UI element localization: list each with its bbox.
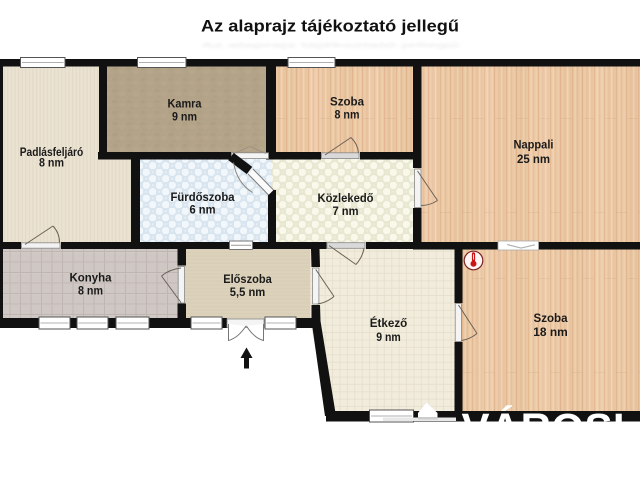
svg-text:Szoba: Szoba [534, 311, 568, 325]
svg-text:8 nm: 8 nm [335, 108, 360, 122]
svg-text:Étkező: Étkező [370, 315, 408, 330]
svg-text:Kamra: Kamra [168, 97, 202, 111]
svg-text:Nappali: Nappali [514, 138, 554, 152]
svg-text:7 nm: 7 nm [333, 204, 359, 218]
svg-text:Az alaprajz tájékoztató jelleg: Az alaprajz tájékoztató jellegű [201, 17, 459, 36]
svg-text:18 nm: 18 nm [533, 325, 568, 339]
svg-text:5,5 nm: 5,5 nm [230, 285, 266, 299]
svg-text:6 nm: 6 nm [190, 203, 216, 217]
svg-text:Konyha: Konyha [70, 271, 112, 285]
svg-text:Közlekedő: Közlekedő [318, 191, 374, 205]
svg-text:VÁROSI: VÁROSI [462, 405, 625, 452]
svg-text:Az alaprajz tájékoztató jelleg: Az alaprajz tájékoztató jellegű [201, 41, 459, 50]
svg-text:8 nm: 8 nm [78, 284, 103, 298]
svg-text:25 nm: 25 nm [517, 152, 550, 166]
svg-text:9 nm: 9 nm [376, 330, 401, 344]
svg-text:8 nm: 8 nm [39, 156, 64, 170]
svg-text:Szoba: Szoba [330, 95, 364, 109]
svg-text:9 nm: 9 nm [172, 110, 197, 124]
svg-text:Előszoba: Előszoba [223, 272, 272, 286]
